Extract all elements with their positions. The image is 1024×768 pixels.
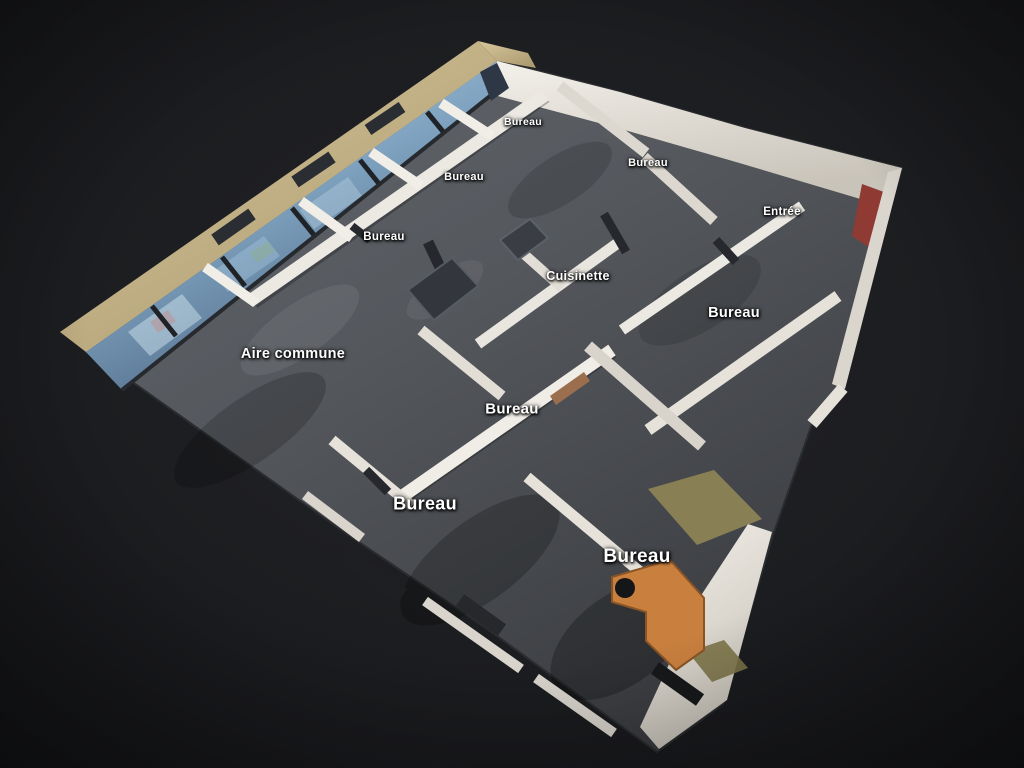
dollhouse-3d-viewport[interactable]: BureauBureauBureauEntréeBureauCuisinette… <box>0 0 1024 768</box>
floorplan-3d-model <box>0 0 1024 768</box>
vignette-overlay <box>0 0 1024 768</box>
